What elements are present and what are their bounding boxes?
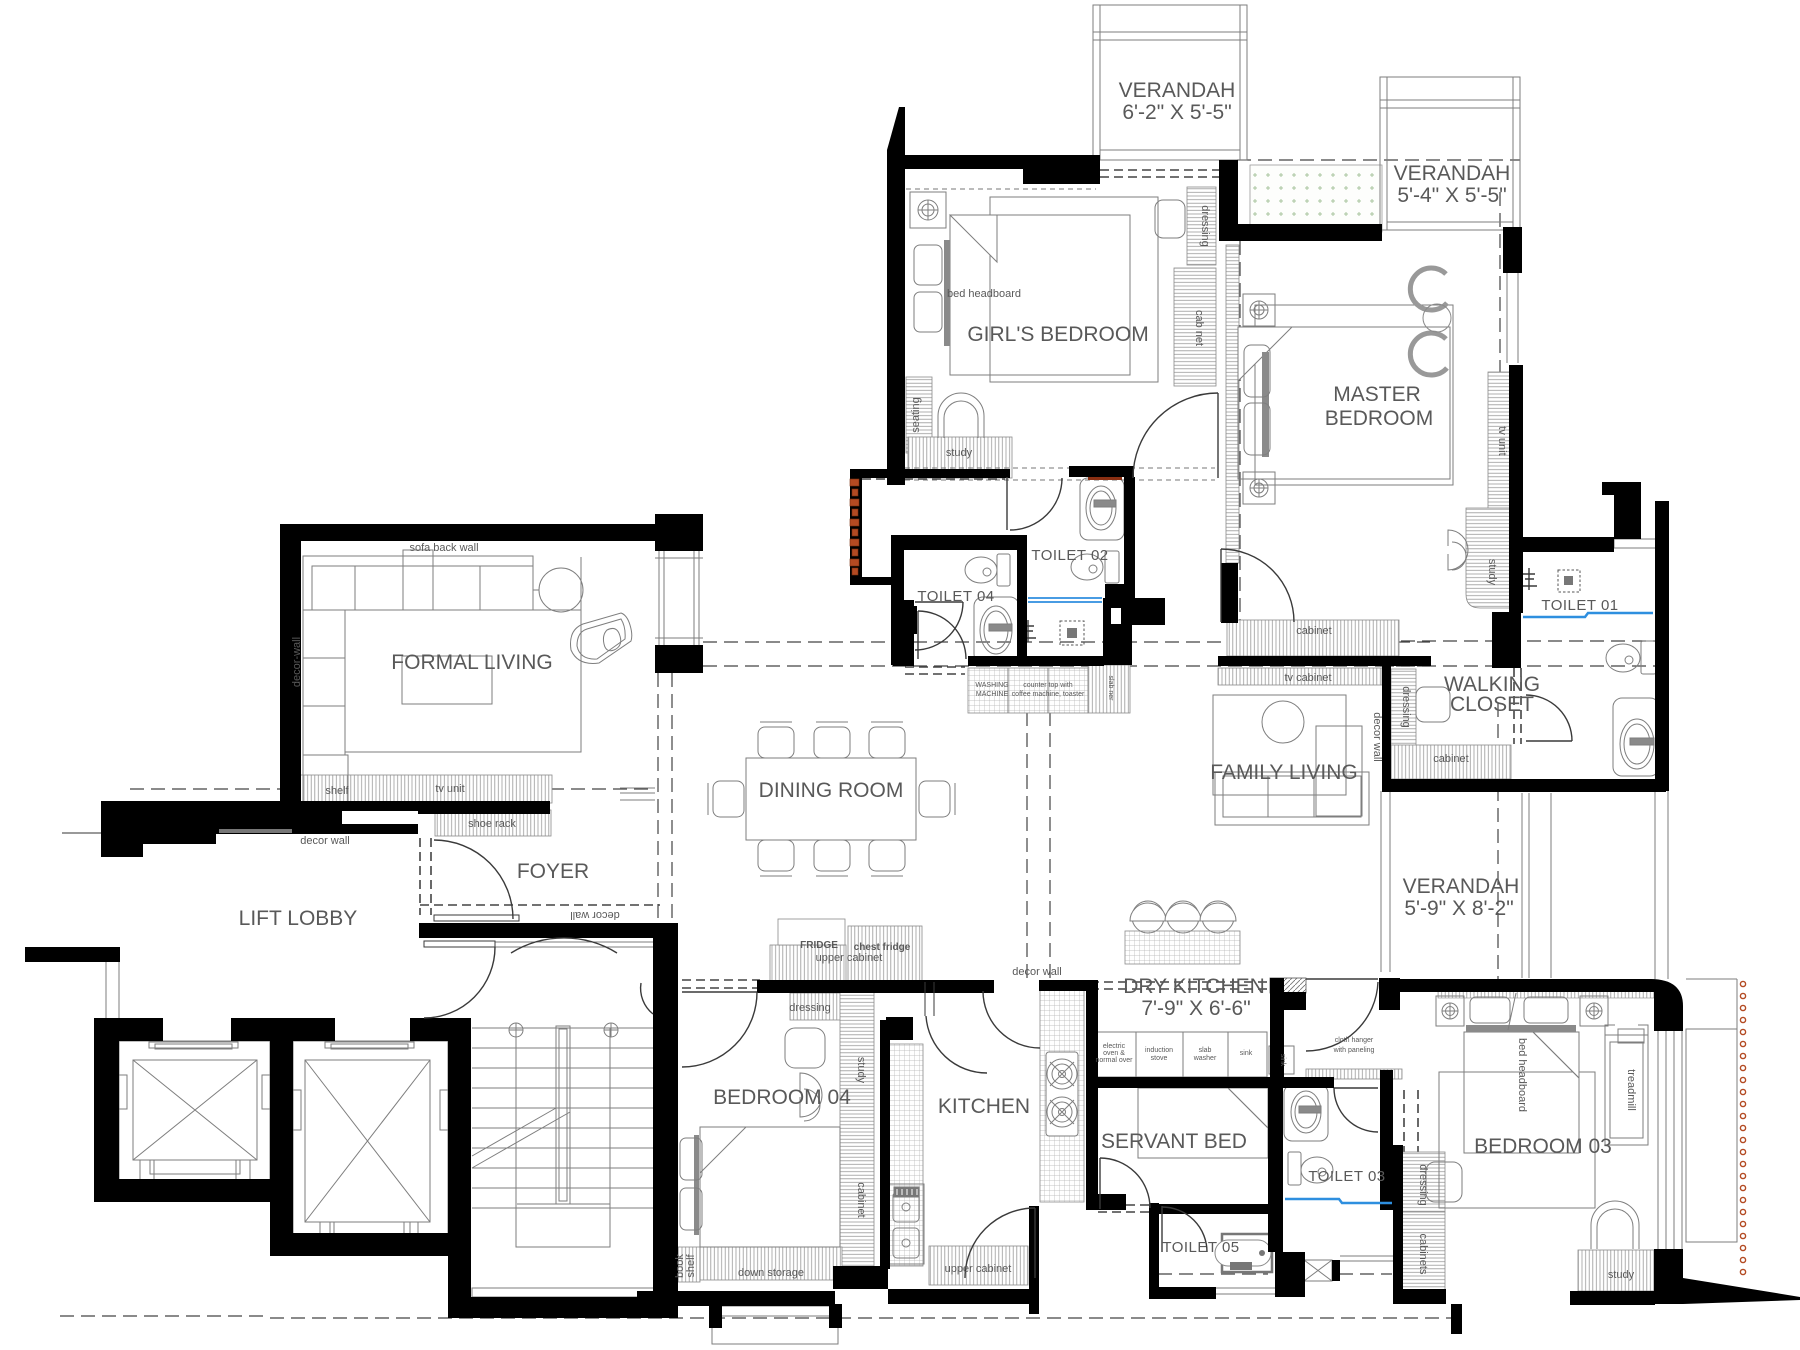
svg-text:seating: seating (910, 397, 922, 432)
svg-text:VERANDAH: VERANDAH (1403, 875, 1520, 898)
svg-text:cabinet: cabinet (1433, 753, 1468, 765)
svg-text:LIFT LOBBY: LIFT LOBBY (239, 907, 358, 930)
svg-text:dressing: dressing (1417, 1164, 1429, 1206)
svg-text:KITCHEN: KITCHEN (938, 1095, 1030, 1118)
svg-text:counter top with: counter top with (1023, 682, 1073, 689)
svg-text:with paneling: with paneling (1333, 1047, 1375, 1054)
svg-text:GIRL'S BEDROOM: GIRL'S BEDROOM (967, 323, 1148, 346)
svg-text:DINING ROOM: DINING ROOM (759, 779, 904, 802)
svg-text:MACHINE: MACHINE (976, 691, 1009, 698)
svg-text:study: study (946, 447, 973, 459)
svg-text:bed headboard: bed headboard (1516, 1038, 1528, 1112)
svg-text:SERVANT BED: SERVANT BED (1101, 1130, 1247, 1153)
svg-text:sofa back wall: sofa back wall (409, 542, 478, 554)
svg-text:coffee machine, toaster: coffee machine, toaster (1012, 691, 1085, 698)
svg-text:VERANDAH: VERANDAH (1119, 79, 1236, 102)
svg-text:treadmill: treadmill (1625, 1069, 1637, 1111)
svg-text:upper cabinet: upper cabinet (816, 952, 883, 964)
svg-text:slab: slab (1199, 1047, 1212, 1054)
svg-text:dressing: dressing (789, 1002, 831, 1014)
svg-text:cab net: cab net (1193, 310, 1205, 346)
svg-text:CLOSET: CLOSET (1450, 693, 1534, 716)
svg-text:cabinets: cabinets (1417, 1234, 1429, 1275)
svg-text:VERANDAH: VERANDAH (1394, 162, 1511, 185)
svg-text:BEDROOM 04: BEDROOM 04 (713, 1086, 851, 1109)
svg-text:cloth hanger: cloth hanger (1335, 1037, 1374, 1044)
svg-text:decor wall: decor wall (570, 909, 620, 921)
svg-text:dressing: dressing (1400, 686, 1412, 728)
svg-text:FOYER: FOYER (517, 860, 589, 883)
svg-text:normal over: normal over (1096, 1057, 1134, 1064)
svg-text:sink: sink (1279, 1054, 1286, 1067)
svg-text:sink: sink (1240, 1050, 1253, 1057)
svg-text:electric: electric (1103, 1043, 1126, 1050)
svg-text:tv unit: tv unit (1496, 426, 1508, 455)
svg-text:6'-2" X 5'-5": 6'-2" X 5'-5" (1122, 101, 1231, 124)
svg-text:TOILET 02: TOILET 02 (1031, 547, 1108, 564)
svg-text:DRY KITCHEN: DRY KITCHEN (1123, 975, 1265, 998)
svg-text:TOILET 03: TOILET 03 (1308, 1168, 1385, 1185)
svg-text:study: study (855, 1057, 867, 1084)
svg-text:oven &: oven & (1103, 1050, 1125, 1057)
svg-text:decor wall: decor wall (300, 835, 350, 847)
svg-text:study: study (1486, 559, 1498, 586)
svg-text:slab ner: slab ner (1107, 676, 1114, 702)
svg-text:decor-wall: decor-wall (291, 637, 303, 687)
svg-text:upper cabinet: upper cabinet (945, 1263, 1012, 1275)
svg-text:bed headboard: bed headboard (947, 288, 1021, 300)
svg-text:TOILET 04: TOILET 04 (917, 588, 994, 605)
svg-text:cabinet: cabinet (855, 1182, 867, 1217)
svg-text:stove: stove (1151, 1055, 1168, 1062)
svg-text:shoe rack: shoe rack (468, 818, 516, 830)
svg-text:down storage: down storage (738, 1267, 804, 1279)
svg-text:MASTER: MASTER (1333, 383, 1421, 406)
svg-text:5'-4" X 5'-5": 5'-4" X 5'-5" (1397, 184, 1506, 207)
svg-text:TOILET 05: TOILET 05 (1162, 1239, 1239, 1256)
svg-text:dressing: dressing (1199, 205, 1211, 247)
svg-text:BEDROOM 03: BEDROOM 03 (1474, 1135, 1612, 1158)
svg-text:washer: washer (1193, 1055, 1217, 1062)
svg-text:shelf: shelf (325, 785, 349, 797)
svg-text:FRIDGE: FRIDGE (800, 940, 838, 951)
svg-text:TOILET 01: TOILET 01 (1541, 597, 1618, 614)
svg-text:tv cabinet: tv cabinet (1284, 672, 1331, 684)
svg-text:decor wall: decor wall (1012, 966, 1062, 978)
svg-text:7'-9" X 6'-6": 7'-9" X 6'-6" (1141, 997, 1250, 1020)
svg-text:FORMAL LIVING: FORMAL LIVING (391, 651, 552, 674)
svg-text:5'-9" X 8'-2": 5'-9" X 8'-2" (1404, 897, 1513, 920)
svg-text:tv unit: tv unit (435, 783, 464, 795)
svg-text:shelf: shelf (685, 1253, 697, 1277)
svg-text:BEDROOM: BEDROOM (1325, 407, 1434, 430)
svg-text:study: study (1608, 1269, 1635, 1281)
svg-text:induction: induction (1145, 1047, 1173, 1054)
svg-text:WASHING: WASHING (975, 682, 1008, 689)
svg-text:FAMILY LIVING: FAMILY LIVING (1210, 761, 1357, 784)
svg-text:cabinet: cabinet (1296, 625, 1331, 637)
svg-text:decor wall: decor wall (1371, 712, 1383, 762)
